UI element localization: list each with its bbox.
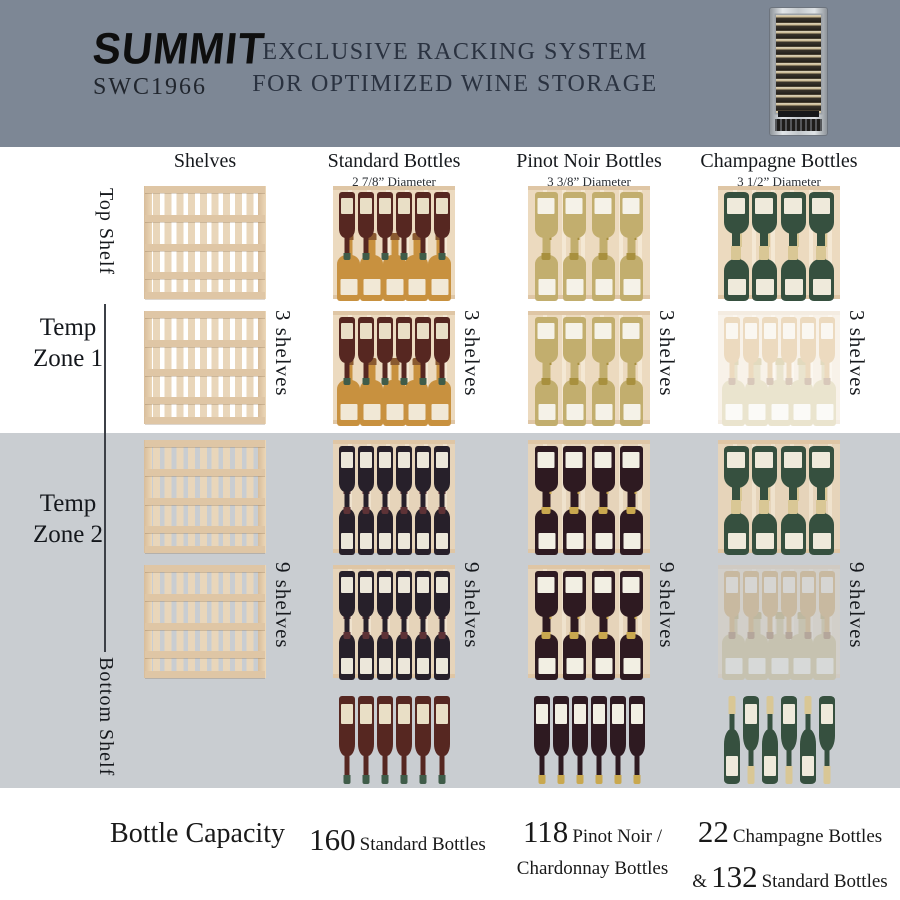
bottle-label: [417, 198, 429, 214]
bottle-rack-1-2: [333, 440, 455, 553]
wine-bottle-amber: [781, 317, 797, 385]
bottle-foil-cap: [401, 632, 408, 639]
wine-bottle-burgundy: [377, 192, 393, 260]
bottle-label: [745, 323, 757, 339]
header-band: SUMMIT SWC1966 EXCLUSIVE RACKING SYSTEM …: [0, 0, 900, 147]
bottle-label: [398, 704, 410, 724]
bottle-label: [595, 533, 612, 549]
wine-bottle-burgundy: [434, 192, 450, 260]
bottle-label: [386, 404, 403, 420]
wine-bottle-pinot: [592, 446, 615, 514]
bottle-label: [538, 404, 555, 420]
wine-bottle-burgundy: [358, 317, 374, 385]
shelf-crossbar: [145, 651, 265, 658]
capacity-champagne-standard: 22 Champagne Bottles & 132 Standard Bott…: [685, 810, 895, 900]
bottle-foil-cap: [344, 378, 351, 385]
bottle-label: [436, 577, 448, 593]
bottle-foil-cap: [382, 378, 389, 385]
wine-bottle-whitewine: [620, 317, 643, 385]
bottle-foil-cap: [805, 378, 812, 385]
shelf-rack-image: [144, 440, 266, 553]
wine-bottle-pinot: [535, 446, 558, 514]
bottle-label: [436, 452, 448, 468]
bottle-foil-cap: [732, 500, 742, 514]
shelf-crossbar: [145, 272, 265, 279]
wine-bottle-champagne: [800, 696, 816, 784]
bottle-label: [341, 658, 353, 674]
bottle-label: [417, 577, 429, 593]
bottle-rack-2-2: [528, 440, 650, 553]
wine-bottle-darkred: [358, 446, 374, 514]
shelf-axis-line: [104, 304, 106, 652]
wine-bottle-champagne: [781, 446, 806, 514]
bottle-foil-cap: [420, 253, 427, 260]
bottle-foil-cap: [615, 775, 622, 784]
bottle-foil-cap: [760, 500, 770, 514]
bottle-foil-cap: [401, 378, 408, 385]
bottle-foil-cap: [344, 253, 351, 260]
shelf-crossbar: [145, 440, 265, 447]
bottle-label: [379, 658, 391, 674]
temp-zone-1-label: Temp Zone 1: [8, 312, 128, 375]
shelf-count-label: 3 shelves: [654, 310, 679, 428]
shelf-rack-image: [144, 565, 266, 678]
shelf-rail: [144, 311, 152, 424]
shelf-count-label: 9 shelves: [459, 562, 484, 680]
wine-bottle-pinot: [610, 696, 626, 784]
bottle-foil-cap: [382, 253, 389, 260]
bottle-foil-cap: [634, 775, 641, 784]
bottle-label: [431, 279, 448, 295]
bottle-label: [538, 323, 555, 339]
bottle-label: [360, 658, 372, 674]
bottle-label: [536, 704, 548, 724]
bottle-foil-cap: [599, 378, 608, 385]
bottle-label: [341, 577, 353, 593]
bottle-foil-cap: [627, 378, 636, 385]
bottle-label: [340, 404, 357, 420]
bottle-foil-cap: [729, 696, 736, 714]
bottle-label: [816, 658, 833, 674]
wine-bottle-darkred: [415, 446, 431, 514]
bottle-label: [574, 704, 586, 724]
shelf-crossbar: [145, 546, 265, 553]
bottle-label: [802, 756, 814, 776]
bottle-label: [748, 404, 765, 420]
shelf-count-label: 3 shelves: [270, 310, 295, 428]
wine-bottle-pinot: [553, 696, 569, 784]
bottle-label: [341, 452, 353, 468]
temp-zone-2-label: Temp Zone 2: [8, 488, 128, 551]
bottle-foil-cap: [363, 378, 370, 385]
bottle-label: [360, 198, 372, 214]
bottle-label: [408, 279, 425, 295]
bottle-foil-cap: [439, 507, 446, 514]
bottle-foil-cap: [401, 775, 408, 784]
shelf-rail: [144, 440, 152, 553]
bottle-label: [360, 452, 372, 468]
wine-bottle-champagne: [781, 192, 806, 260]
bottle-foil-cap: [439, 378, 446, 385]
bottle-label: [538, 533, 555, 549]
wine-bottle-champagne: [819, 696, 835, 784]
wine-bottle-champagne: [809, 192, 834, 260]
wine-bottle-whitewine: [563, 192, 586, 260]
shelf-crossbar: [145, 565, 265, 572]
bottle-foil-cap: [439, 632, 446, 639]
bottle-label: [566, 404, 583, 420]
shelf-crossbar: [145, 623, 265, 630]
wine-bottle-champagne: [781, 696, 797, 784]
wine-bottle-darkred: [358, 571, 374, 639]
bottle-label: [595, 452, 612, 468]
wine-cooler-vent-grille: [775, 119, 822, 131]
bottle-label: [785, 452, 803, 468]
bottle-foil-cap: [748, 378, 755, 385]
shelf-count-label: 9 shelves: [844, 562, 869, 680]
shelf-crossbar: [145, 311, 265, 318]
bottle-label: [785, 279, 803, 295]
wine-cooler-glass-door: [776, 15, 821, 113]
shelf-rail: [144, 565, 152, 678]
bottle-label: [341, 533, 353, 549]
bottle-foil-cap: [599, 632, 608, 639]
bottle-label: [379, 452, 391, 468]
bottle-foil-cap: [805, 632, 812, 639]
bottle-foil-cap: [789, 246, 799, 260]
bottle-label: [595, 323, 612, 339]
bottle-label: [821, 704, 833, 724]
wine-bottle-burgundy: [396, 696, 412, 784]
bottle-label: [538, 658, 555, 674]
bottle-label: [593, 704, 605, 724]
bottle-label: [802, 323, 814, 339]
bottle-label: [360, 704, 372, 724]
wine-bottle-burgundy: [396, 192, 412, 260]
wine-bottle-burgundy: [358, 192, 374, 260]
bottle-label: [764, 577, 776, 593]
bottle-label: [745, 577, 757, 593]
wine-bottle-burgundy: [358, 696, 374, 784]
bottle-label: [360, 577, 372, 593]
bottle-label: [756, 533, 774, 549]
shelf-crossbar: [145, 397, 265, 404]
bottle-label: [566, 658, 583, 674]
bottle-label: [566, 279, 583, 295]
bottle-label: [793, 658, 810, 674]
wine-bottle-darkred: [396, 446, 412, 514]
model-number: SWC1966: [93, 74, 265, 101]
bottle-label: [793, 404, 810, 420]
bottle-label: [725, 404, 742, 420]
bottle-label: [764, 323, 776, 339]
bottle-label: [555, 704, 567, 724]
bottle-foil-cap: [344, 775, 351, 784]
bottle-label: [783, 323, 795, 339]
bottle-foil-cap: [382, 775, 389, 784]
bottle-label: [764, 756, 776, 776]
wine-bottle-pinot: [620, 446, 643, 514]
bottle-label: [417, 452, 429, 468]
bottle-foil-cap: [596, 775, 603, 784]
bottle-foil-cap: [817, 246, 827, 260]
bottle-rack-3-3: [718, 565, 840, 678]
bottle-foil-cap: [760, 246, 770, 260]
wine-bottle-champagne: [752, 446, 777, 514]
shelf-crossbar: [145, 292, 265, 299]
bottle-rack-2-3: [528, 565, 650, 678]
shelf-rack-image: [144, 186, 266, 299]
bottle-rack-1-3: [333, 565, 455, 678]
bottle-foil-cap: [344, 507, 351, 514]
bottle-label: [379, 198, 391, 214]
column-header-shelves: Shelves: [105, 150, 305, 174]
wine-bottle-darkred: [377, 571, 393, 639]
bottle-foil-cap: [363, 253, 370, 260]
bottle-label: [595, 279, 612, 295]
bottle-label: [728, 198, 746, 214]
bottle-foil-cap: [824, 766, 831, 784]
bottle-label: [408, 404, 425, 420]
bottle-label: [623, 533, 640, 549]
bottle-label: [623, 452, 640, 468]
bottle-foil-cap: [789, 500, 799, 514]
bottle-label: [623, 323, 640, 339]
bottle-label: [623, 279, 640, 295]
top-shelf-label: Top Shelf: [94, 188, 117, 300]
bottle-rack-1-1: [333, 311, 455, 424]
wine-bottle-champagne: [743, 696, 759, 784]
wine-bottle-amber: [724, 317, 740, 385]
wine-bottle-pinot: [563, 446, 586, 514]
wine-bottle-burgundy: [377, 696, 393, 784]
shelf-crossbar: [145, 594, 265, 601]
bottle-capacity-band: Bottle Capacity 160 Standard Bottles 118…: [0, 788, 900, 900]
shelf-rail: [258, 186, 266, 299]
bottle-label: [341, 198, 353, 214]
bottle-foil-cap: [786, 378, 793, 385]
bottle-label: [728, 533, 746, 549]
bottle-label: [431, 404, 448, 420]
bottle-label: [398, 533, 410, 549]
bottle-label: [386, 279, 403, 295]
wine-bottle-whitewine: [592, 317, 615, 385]
wine-bottle-darkred: [396, 571, 412, 639]
bottle-label: [538, 577, 555, 593]
bottle-foil-cap: [729, 378, 736, 385]
bottle-label: [398, 198, 410, 214]
wine-cooler-control-panel: [778, 111, 819, 117]
bottle-rack-1-0: [333, 186, 455, 299]
wine-bottle-burgundy: [415, 696, 431, 784]
wine-bottle-amber: [762, 571, 778, 639]
wine-bottle-darkred: [339, 571, 355, 639]
wine-bottle-burgundy: [434, 317, 450, 385]
bottom-shelf-label: Bottom Shelf: [94, 657, 117, 782]
capacity-title: Bottle Capacity: [95, 818, 300, 850]
page-title: EXCLUSIVE RACKING SYSTEM FOR OPTIMIZED W…: [240, 36, 670, 101]
bottle-label: [595, 404, 612, 420]
bottle-foil-cap: [767, 378, 774, 385]
wine-bottle-amber: [743, 317, 759, 385]
wine-bottle-amber: [781, 571, 797, 639]
bottle-foil-cap: [420, 632, 427, 639]
wine-bottle-darkred: [434, 446, 450, 514]
bottle-label: [436, 533, 448, 549]
bottle-foil-cap: [570, 253, 579, 260]
bottle-foil-cap: [627, 632, 636, 639]
bottle-foil-cap: [363, 507, 370, 514]
bottle-label: [783, 704, 795, 724]
bottle-label: [363, 404, 380, 420]
bottle-foil-cap: [382, 632, 389, 639]
bottle-label: [398, 452, 410, 468]
shelf-crossbar: [145, 526, 265, 533]
bottle-foil-cap: [824, 632, 831, 639]
bottle-foil-cap: [817, 500, 827, 514]
bottle-label: [771, 404, 788, 420]
bottle-label: [417, 704, 429, 724]
shelf-rack-image: [144, 311, 266, 424]
bottle-foil-cap: [805, 696, 812, 714]
wine-bottle-pinot: [620, 571, 643, 639]
bottle-rack-3-0: [718, 186, 840, 299]
bottom-shelf-bottles-1: [333, 692, 455, 786]
bottle-label: [785, 533, 803, 549]
bottle-foil-cap: [439, 253, 446, 260]
bottle-label: [379, 704, 391, 724]
wine-bottle-champagne: [752, 192, 777, 260]
column-header-pinot-noir-bottles: Pinot Noir Bottles 3 3/8” Diameter: [489, 150, 689, 190]
bottle-label: [417, 533, 429, 549]
shelf-count-label: 9 shelves: [270, 562, 295, 680]
wine-bottle-pinot: [572, 696, 588, 784]
bottle-label: [623, 658, 640, 674]
wine-bottle-whitewine: [592, 192, 615, 260]
wine-bottle-pinot: [535, 571, 558, 639]
page-title-line2: FOR OPTIMIZED WINE STORAGE: [240, 68, 670, 100]
bottle-foil-cap: [420, 775, 427, 784]
shelf-count-label: 9 shelves: [654, 562, 679, 680]
wine-bottle-amber: [762, 317, 778, 385]
bottle-label: [566, 577, 583, 593]
infographic-canvas: SUMMIT SWC1966 EXCLUSIVE RACKING SYSTEM …: [0, 0, 900, 900]
bottle-label: [363, 279, 380, 295]
wine-bottle-burgundy: [415, 192, 431, 260]
bottle-foil-cap: [542, 378, 551, 385]
bottle-foil-cap: [599, 507, 608, 514]
bottle-foil-cap: [570, 632, 579, 639]
wine-bottle-pinot: [629, 696, 645, 784]
bottle-foil-cap: [363, 775, 370, 784]
bottle-label: [802, 577, 814, 593]
bottle-foil-cap: [401, 253, 408, 260]
page-title-line1: EXCLUSIVE RACKING SYSTEM: [240, 36, 670, 68]
bottle-label: [566, 198, 583, 214]
bottle-label: [566, 533, 583, 549]
shelf-slats: [153, 311, 257, 424]
bottle-label: [341, 704, 353, 724]
bottle-rack-3-1: [718, 311, 840, 424]
bottle-foil-cap: [344, 632, 351, 639]
bottle-label: [379, 533, 391, 549]
bottom-shelf-bottles-2: [528, 692, 650, 786]
bottle-label: [341, 323, 353, 339]
bottle-foil-cap: [542, 253, 551, 260]
bottle-label: [726, 756, 738, 776]
bottle-label: [379, 577, 391, 593]
bottle-foil-cap: [627, 507, 636, 514]
wine-bottle-pinot: [592, 571, 615, 639]
wine-bottle-burgundy: [339, 317, 355, 385]
bottle-label: [436, 198, 448, 214]
shelf-rail: [258, 565, 266, 678]
bottle-foil-cap: [577, 775, 584, 784]
bottle-label: [398, 658, 410, 674]
shelf-crossbar: [145, 417, 265, 424]
bottle-label: [398, 577, 410, 593]
bottle-label: [360, 323, 372, 339]
shelf-crossbar: [145, 244, 265, 251]
shelf-rail: [258, 311, 266, 424]
bottle-label: [398, 323, 410, 339]
bottle-label: [538, 198, 555, 214]
shelf-rail: [144, 186, 152, 299]
bottle-label: [726, 577, 738, 593]
bottle-foil-cap: [570, 378, 579, 385]
bottle-label: [813, 279, 831, 295]
bottle-label: [813, 533, 831, 549]
bottle-label: [756, 279, 774, 295]
bottle-label: [756, 452, 774, 468]
bottle-foil-cap: [363, 632, 370, 639]
bottle-label: [566, 452, 583, 468]
bottle-foil-cap: [382, 507, 389, 514]
wine-bottle-pinot: [534, 696, 550, 784]
bottle-foil-cap: [539, 775, 546, 784]
bottle-label: [595, 658, 612, 674]
bottle-label: [379, 323, 391, 339]
bottle-label: [725, 658, 742, 674]
shelf-rail: [258, 440, 266, 553]
bottle-label: [595, 577, 612, 593]
shelf-crossbar: [145, 186, 265, 193]
wine-bottle-burgundy: [339, 192, 355, 260]
wine-bottle-whitewine: [563, 317, 586, 385]
wine-cooler-image: [770, 8, 827, 135]
bottle-label: [728, 279, 746, 295]
bottle-foil-cap: [570, 507, 579, 514]
wine-bottle-champagne: [724, 446, 749, 514]
bottle-foil-cap: [748, 766, 755, 784]
shelf-crossbar: [145, 340, 265, 347]
bottle-foil-cap: [786, 766, 793, 784]
wine-bottle-whitewine: [535, 317, 558, 385]
shelf-count-label: 3 shelves: [844, 310, 869, 428]
bottle-label: [785, 198, 803, 214]
bottle-label: [771, 658, 788, 674]
wine-bottle-burgundy: [415, 317, 431, 385]
bottle-label: [813, 452, 831, 468]
capacity-standard: 160 Standard Bottles: [300, 822, 495, 858]
bottle-label: [813, 198, 831, 214]
bottle-label: [726, 323, 738, 339]
bottle-label: [417, 658, 429, 674]
bottle-label: [340, 279, 357, 295]
bottle-label: [745, 704, 757, 724]
wine-bottle-champagne: [724, 192, 749, 260]
column-header-standard-bottles: Standard Bottles 2 7/8” Diameter: [294, 150, 494, 190]
